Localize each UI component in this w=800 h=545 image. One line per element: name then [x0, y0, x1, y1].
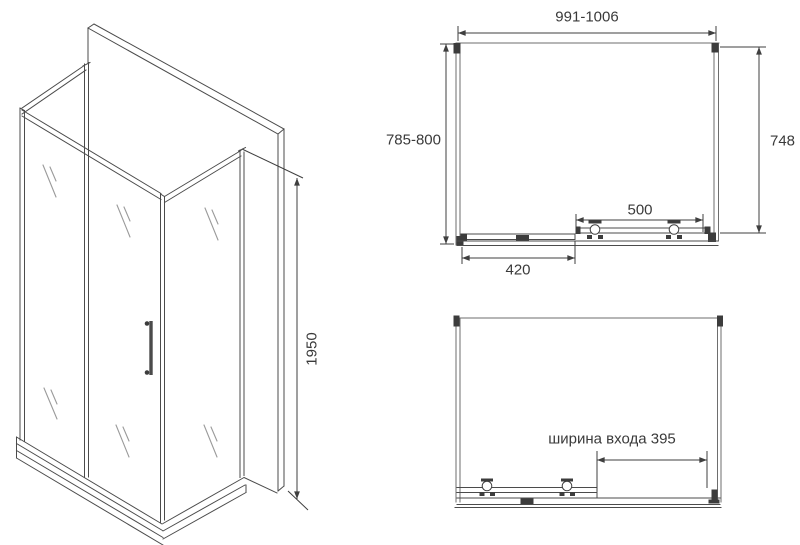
bottom-guide — [521, 499, 534, 505]
back-wall-panel — [88, 24, 284, 491]
wall-profile-mark — [454, 316, 460, 327]
bottom-guide — [516, 235, 529, 241]
plan-side-depth-dimension: 748 — [720, 47, 795, 233]
left-side-panel — [22, 63, 90, 478]
plan-depth-label: 785-800 — [386, 132, 441, 149]
wall-profile-mark — [712, 43, 719, 53]
front-view: ширина входа 395 — [454, 316, 724, 508]
base-tray — [17, 437, 278, 545]
door-frame — [20, 108, 165, 523]
corner-bracket-foot — [709, 500, 720, 504]
plan-roller-1 — [587, 221, 603, 240]
wall-profile-mark — [454, 43, 461, 54]
technical-drawing: 1950 — [0, 0, 800, 545]
plan-width-dimension: 991-1006 — [458, 9, 716, 42]
plan-fixed-panel-label: 420 — [505, 262, 530, 279]
wall-profile-mark — [717, 316, 723, 327]
drawing-canvas: 1950 — [0, 0, 800, 545]
plan-fixed-panel-dimension: 420 — [462, 241, 575, 279]
plan-depth-dimension: 785-800 — [386, 44, 454, 244]
height-dimension-label: 1950 — [304, 332, 321, 365]
glass-reflection-marks — [43, 165, 218, 457]
plan-width-label: 991-1006 — [555, 9, 618, 26]
entrance-width-label: ширина входа 395 — [548, 431, 676, 448]
door-handle — [145, 321, 151, 375]
height-dimension: 1950 — [242, 149, 321, 510]
plan-view: 991-1006 785-800 748 500 420 — [386, 9, 795, 279]
isometric-view: 1950 — [17, 24, 321, 545]
plan-side-depth-label: 748 — [770, 133, 795, 150]
plan-door-width-label: 500 — [627, 202, 652, 219]
front-sliding-door — [457, 479, 597, 499]
plan-walls — [454, 43, 720, 245]
entrance-width-dimension: ширина входа 395 — [548, 431, 707, 492]
front-walls — [454, 316, 724, 503]
plan-roller-2 — [666, 221, 682, 240]
